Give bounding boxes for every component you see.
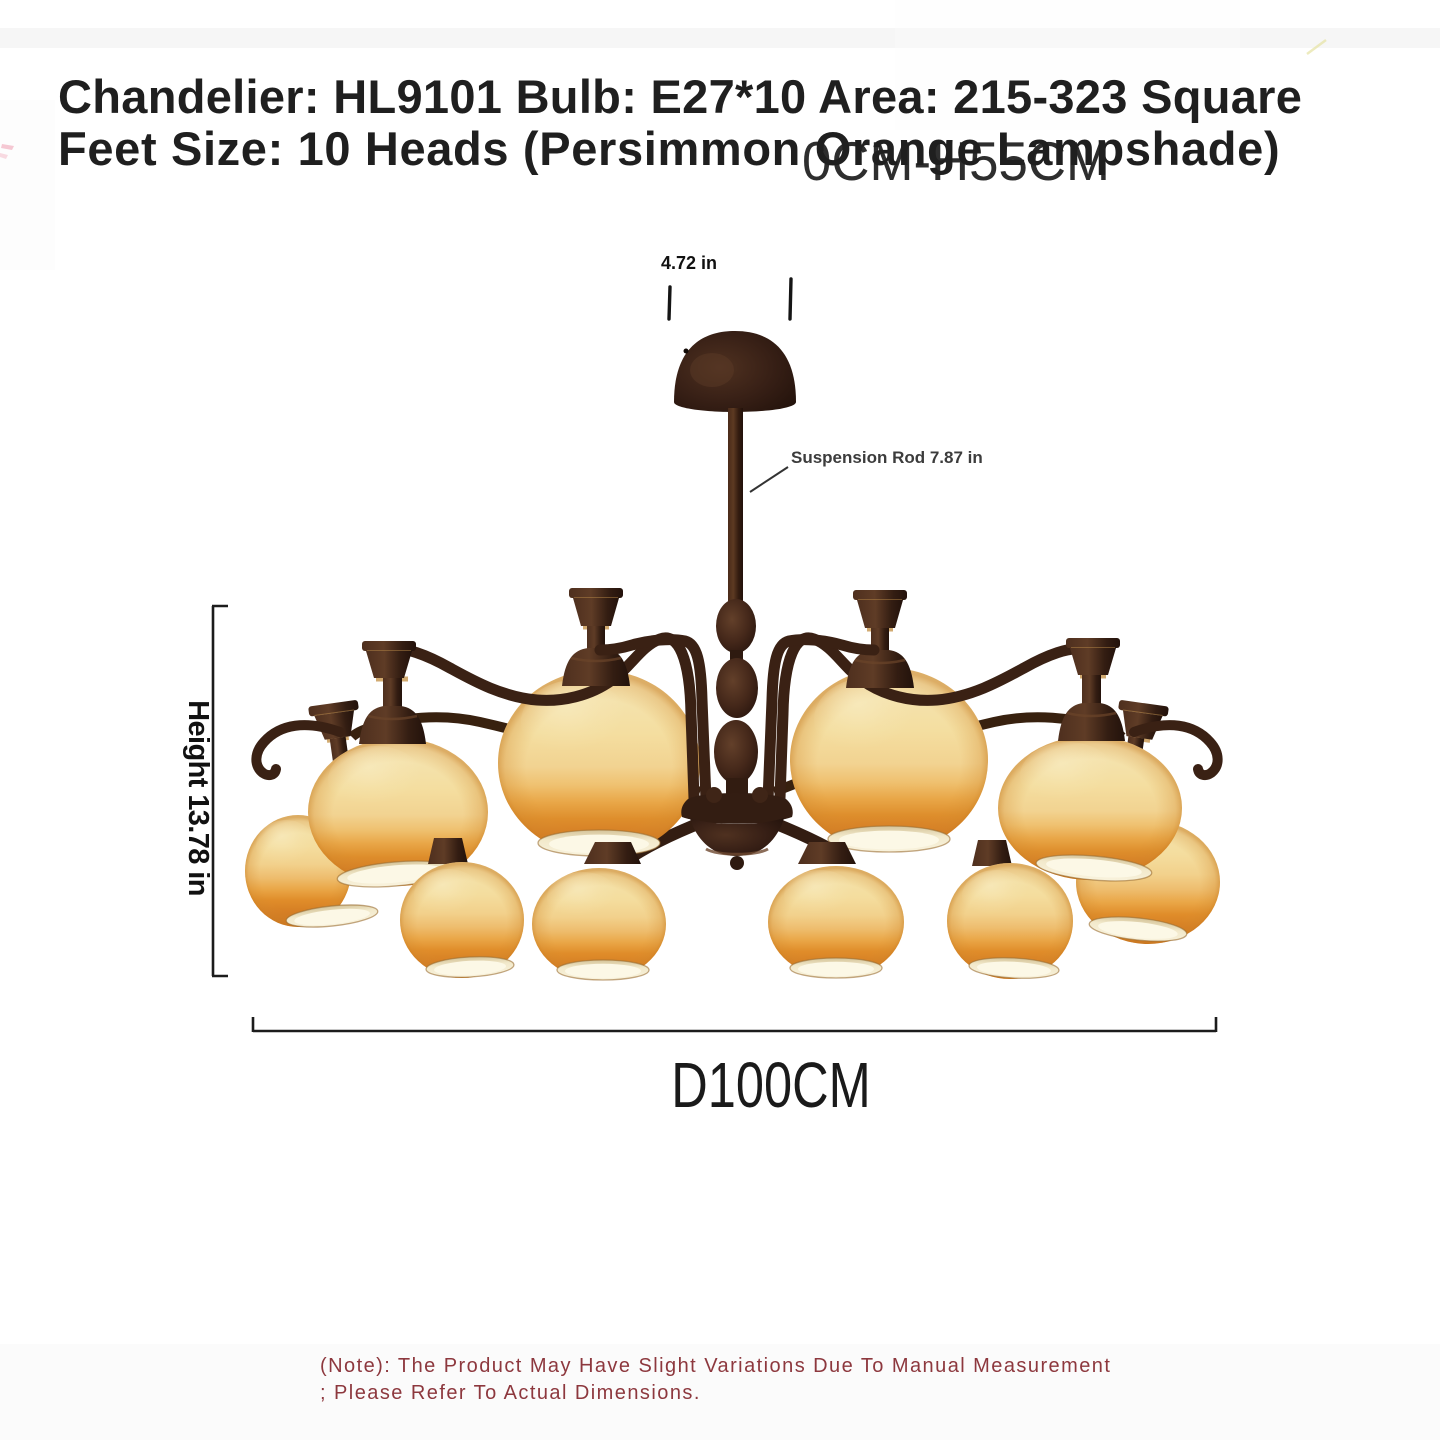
svg-text:(Note): The Product May Have S: (Note): The Product May Have Slight Vari… [320,1355,1111,1377]
svg-text:Chandelier: HL9101 Bulb: E27*1: Chandelier: HL9101 Bulb: E27*10 Area: 21… [58,70,1302,123]
svg-text:; Please Refer To Actual Dimen: ; Please Refer To Actual Dimensions. [320,1382,701,1404]
svg-text:Feet Size: 10 Heads (Persimmon: Feet Size: 10 Heads (Persimmon Orange La… [58,122,1280,175]
svg-text:Suspension Rod 7.87 in: Suspension Rod 7.87 in [791,448,983,467]
svg-text:Height 13.78 in: Height 13.78 in [182,700,214,896]
svg-text:D100CM: D100CM [671,1050,870,1121]
svg-text:4.72 in: 4.72 in [661,253,717,273]
